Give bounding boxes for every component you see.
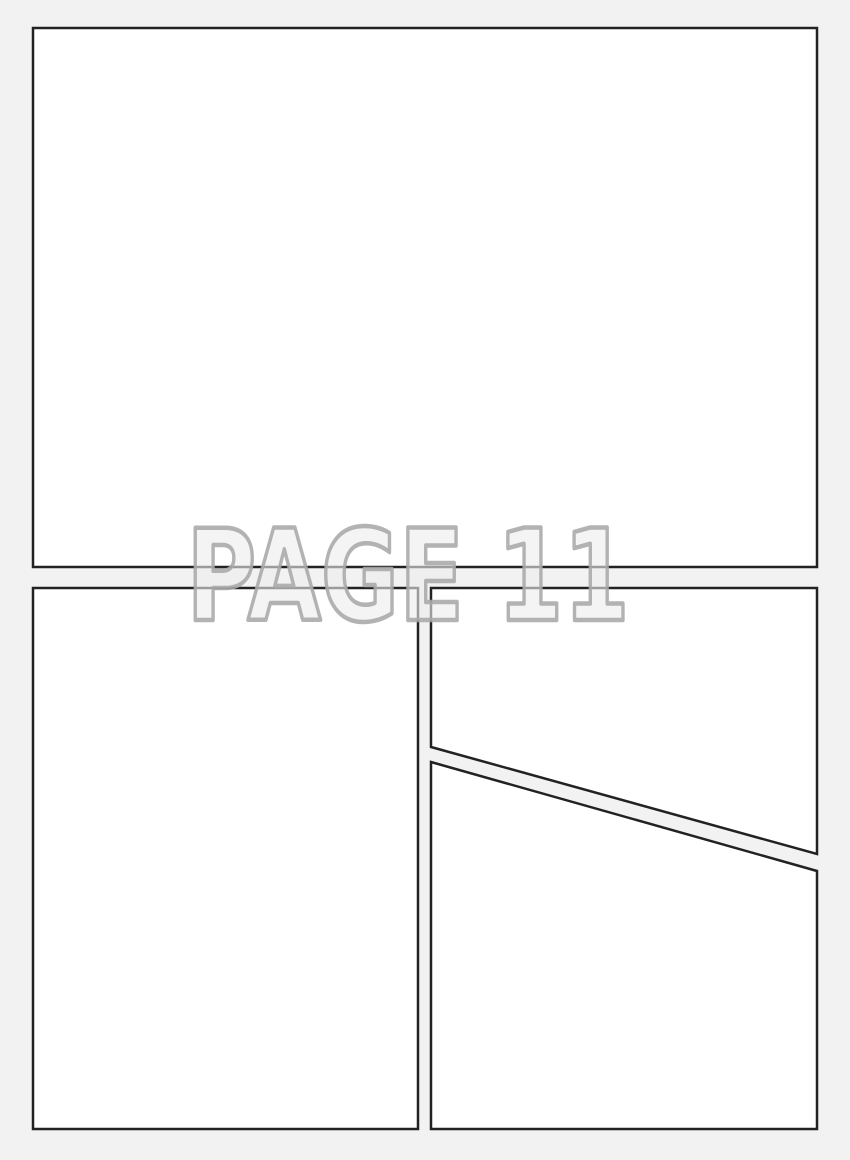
page-number-label: PAGE 11: [187, 502, 630, 650]
panel-bottom-left: [33, 588, 418, 1129]
comic-page: PAGE 11: [0, 0, 850, 1160]
comic-page-canvas: PAGE 11: [0, 0, 850, 1160]
panel-top: [33, 28, 817, 567]
